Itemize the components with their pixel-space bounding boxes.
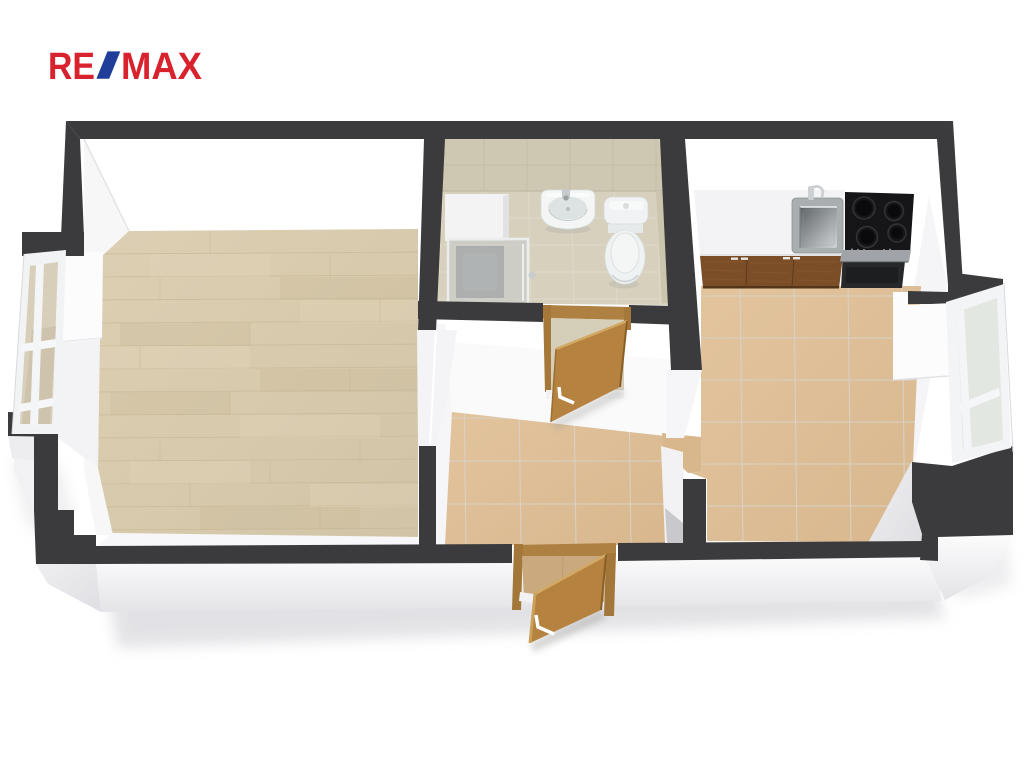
svg-text:MAX: MAX — [121, 46, 203, 88]
svg-text:RE: RE — [48, 46, 95, 88]
